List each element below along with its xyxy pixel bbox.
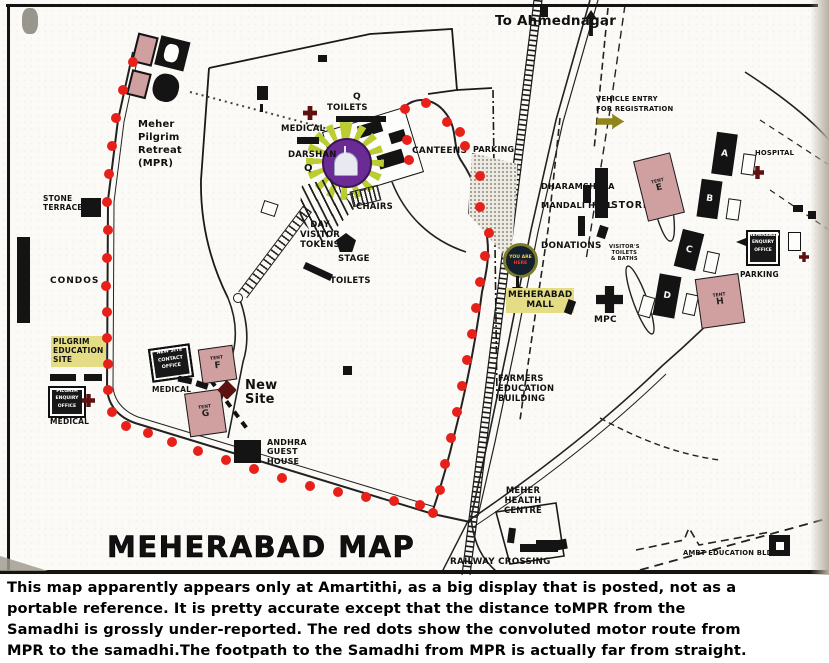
medical-center-building [297, 137, 319, 144]
route-dot [104, 169, 114, 179]
mandali-hall-building-1 [583, 185, 591, 203]
label-vehicle-entry: VEHICLE ENTRY FOR REGISTRATION [596, 95, 673, 115]
caption-line-4: MPR to the samadhi.The footpath to the S… [7, 642, 747, 659]
route-dot [102, 197, 112, 207]
label-donations: DONATIONS [541, 241, 602, 251]
you-are-here-line2: HERE [514, 261, 528, 267]
label-toilets-bottom: TOILETS [330, 276, 371, 286]
label-ambt: AMBT EDUCATION BLDG. [683, 549, 781, 557]
mpr-building-round-2 [150, 71, 182, 104]
route-dot [193, 446, 203, 456]
caption-line-1: This map apparently appears only at Amar… [7, 579, 736, 596]
boundary-east-solid [745, 72, 829, 140]
route-dot [452, 407, 462, 417]
route-dot [305, 481, 315, 491]
outlined-building-6 [788, 232, 801, 251]
route-dot [404, 155, 414, 165]
route-dot [440, 459, 450, 469]
small-building-11 [793, 205, 803, 212]
route-dot [361, 492, 371, 502]
label-condos: CONDOS [50, 276, 99, 287]
route-dot [333, 487, 343, 497]
map-frame-left [7, 4, 10, 571]
route-dot [475, 171, 485, 181]
health-centre-building-2 [520, 544, 537, 552]
route-dot [467, 329, 477, 339]
small-building-4 [260, 104, 263, 112]
samadhi-spire-icon [344, 146, 346, 154]
route-dot [128, 57, 138, 67]
tent-g-letter: G [201, 410, 210, 421]
route-dot [103, 225, 113, 235]
route-dot [421, 98, 431, 108]
tent-g: TENT G [184, 389, 227, 438]
label-stone-terrace: STONE TERRACE [43, 195, 83, 213]
label-day-visitor-tokens: DAY VISITOR TOKENS [300, 220, 340, 250]
route-dot [484, 228, 494, 238]
route-dot [102, 307, 112, 317]
caption-line-3: Samadhi is grossly under-reported. The r… [7, 621, 741, 638]
route-dot [475, 202, 485, 212]
small-building-8 [343, 366, 352, 375]
route-dot [400, 104, 410, 114]
label-parking-right: PARKING [740, 271, 779, 280]
meherabad-map-screenshot: Meher Pilgrim Retreat (MPR) STONE TERRAC… [0, 0, 829, 663]
route-dot [221, 455, 231, 465]
route-dot [428, 508, 438, 518]
compound-boundary-top [209, 29, 457, 94]
small-building-7 [318, 55, 327, 62]
compound-boundary-step [457, 88, 492, 90]
label-meherabad-mall: MEHERABAD MALL [508, 290, 572, 311]
building-d-letter: D [662, 290, 671, 301]
small-building-1 [50, 374, 76, 381]
ambt-building-court [776, 542, 784, 550]
route-dot [480, 251, 490, 261]
condos-building [17, 237, 30, 323]
route-dot [442, 117, 452, 127]
toilets-top-building [336, 116, 386, 122]
label-darshan: DARSHAN [288, 150, 337, 160]
route-dot [402, 135, 412, 145]
label-canteens: CANTEENS [412, 146, 467, 157]
route-dot [103, 385, 113, 395]
label-visitors-toilets: VISITOR'S TOILETS & BATHS [609, 244, 640, 262]
map-canvas: Meher Pilgrim Retreat (MPR) STONE TERRAC… [0, 0, 829, 575]
mpr-building-pink-2 [126, 69, 152, 99]
boundary-dash-3 [586, 5, 625, 260]
caption: This map apparently appears only at Amar… [0, 575, 829, 663]
label-q-marker: Q [353, 92, 361, 103]
small-building-3 [257, 86, 268, 100]
pilgrim-enquiry-office-sign: PILGRIM ENQUIRY OFFICE [48, 386, 86, 418]
you-are-here-marker: YOU ARE HERE [503, 243, 538, 278]
route-dot [102, 333, 112, 343]
route-dot [118, 85, 128, 95]
building-c-letter: C [685, 244, 694, 255]
route-dot [435, 485, 445, 495]
label-andhra-guest-house: ANDHRA GUEST HOUSE [267, 438, 307, 466]
label-darshan-q: Q [304, 163, 313, 175]
route-dot [111, 113, 121, 123]
route-dot [249, 464, 259, 474]
tent-f: TENT F [198, 345, 238, 385]
label-new-site: New Site [245, 379, 277, 408]
building-a-letter: A [720, 149, 728, 160]
compound-boundary-left [201, 68, 228, 298]
route-dot [446, 433, 456, 443]
route-dot [107, 407, 117, 417]
boundary-bottom-zigzag [636, 528, 770, 550]
map-frame-top [6, 4, 818, 7]
route-dot [107, 141, 117, 151]
route-dot [389, 496, 399, 506]
you-are-here-stem [516, 276, 519, 288]
boundary-dash-4 [600, 418, 720, 460]
route-dot [103, 359, 113, 369]
route-dot [143, 428, 153, 438]
label-parking-top: PARKING [473, 145, 514, 154]
route-dot [415, 500, 425, 510]
route-dot [462, 355, 472, 365]
mandali-hall-building-2 [578, 216, 585, 236]
small-building-12 [808, 211, 816, 219]
label-stage: STAGE [338, 254, 370, 264]
store-building [595, 168, 608, 218]
route-dot [102, 253, 112, 263]
route-dot [101, 281, 111, 291]
building-b-letter: B [705, 194, 713, 205]
map-frame-bottom [0, 570, 829, 574]
route-dot [167, 437, 177, 447]
small-building-9 [540, 7, 548, 17]
route-dot [121, 421, 131, 431]
label-medical-center: MEDICAL [281, 124, 325, 134]
stone-terrace-building [81, 198, 101, 217]
route-dot [455, 127, 465, 137]
tent-h: TENT H [695, 273, 746, 329]
route-dot [471, 303, 481, 313]
route-dot [277, 473, 287, 483]
tent-e-letter: E [655, 184, 663, 195]
small-building-2 [84, 374, 102, 381]
route-dot [457, 381, 467, 391]
label-medical-left: MEDICAL [50, 418, 89, 427]
andhra-guest-house-building [234, 440, 261, 463]
label-meher-health-centre: MEHER HEALTH CENTRE [504, 486, 542, 516]
caption-line-2: portable reference. It is pretty accurat… [7, 600, 686, 617]
label-railway-crossing: RAILWAY CROSSING [450, 557, 551, 567]
tent-h-letter: H [716, 298, 725, 309]
label-pilgrim-education: PILGRIM EDUCATION SITE [53, 338, 104, 365]
label-mpr: Meher Pilgrim Retreat (MPR) [138, 118, 182, 170]
route-dot [460, 141, 470, 151]
label-toilets-top: TOILETS [327, 103, 368, 113]
label-to-ahmednagar: To Ahmednagar [495, 14, 616, 30]
boundary-east-dashes [760, 120, 829, 230]
label-hospital: HOSPITAL [755, 149, 794, 157]
label-mpc: MPC [594, 315, 617, 326]
road-complex-to-parking [392, 182, 466, 252]
tent-f-letter: F [214, 361, 221, 372]
route-dot [475, 277, 485, 287]
small-building-6 [233, 293, 243, 303]
label-chairs: CHAIRS [356, 202, 393, 212]
meherabad-enquiry-office-sign: MEHERABAD ENQUIRY OFFICE [746, 230, 780, 266]
samadhi-dome-icon [334, 152, 358, 176]
label-farmers-education: FARMERS EDUCATION BUILDING [498, 374, 554, 404]
map-title: MEHERABAD MAP [107, 530, 415, 564]
